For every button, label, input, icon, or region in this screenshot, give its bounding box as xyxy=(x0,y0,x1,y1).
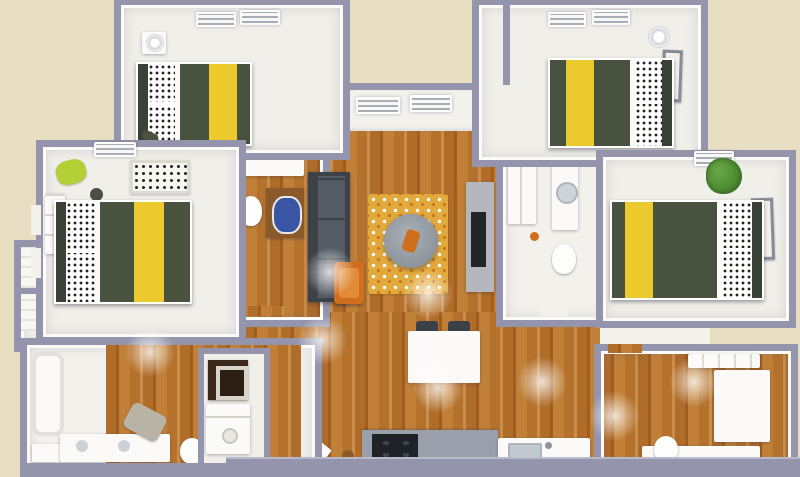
bed-comforter xyxy=(550,60,630,146)
door-opening xyxy=(248,306,284,316)
toilet xyxy=(552,244,576,274)
bed-pillows xyxy=(722,202,752,298)
bathtub xyxy=(32,352,64,436)
bed-headboard xyxy=(752,202,762,298)
tv-console xyxy=(466,182,494,292)
corner-counter xyxy=(714,370,770,442)
bed-comforter xyxy=(612,202,717,298)
shower xyxy=(32,444,60,462)
dryer-door xyxy=(216,366,248,400)
table-lamp xyxy=(146,34,164,52)
wood-vanity xyxy=(266,188,304,238)
bed-stripe xyxy=(625,202,653,298)
decor-orange xyxy=(530,232,539,241)
bed-comforter xyxy=(180,64,250,144)
sink-basin xyxy=(556,182,578,204)
bed-stripe xyxy=(209,64,237,144)
vent-icon xyxy=(94,142,136,157)
vent-icon xyxy=(410,95,452,112)
bed-headboard xyxy=(662,60,672,146)
bed xyxy=(54,200,192,304)
range xyxy=(372,434,418,458)
bed-pillows xyxy=(66,202,95,302)
chair-seat xyxy=(339,268,359,298)
vent-icon xyxy=(196,12,236,27)
exterior-wall-bottom-left xyxy=(20,463,240,477)
dryer-cabinet xyxy=(208,360,248,400)
washer-lid-line xyxy=(206,416,250,418)
table-lamp xyxy=(648,26,670,48)
floor-plan-canvas xyxy=(0,0,800,477)
door-opening xyxy=(540,306,568,316)
bed xyxy=(548,58,674,148)
blue-sink xyxy=(272,196,302,234)
bed-stripe xyxy=(134,202,164,302)
patterned-rug xyxy=(130,160,190,194)
potted-plant xyxy=(706,158,742,194)
vent-icon xyxy=(356,97,400,114)
tv xyxy=(471,212,486,267)
washer-dial xyxy=(222,428,238,444)
window xyxy=(31,205,41,235)
bed xyxy=(610,200,764,300)
bed-stripe xyxy=(566,60,594,146)
exterior-wall-bottom xyxy=(226,457,800,477)
washer xyxy=(206,404,250,454)
vent-icon xyxy=(240,10,280,25)
vent-icon xyxy=(548,12,586,27)
bed-pillows xyxy=(635,60,662,146)
sink-basin xyxy=(76,440,88,452)
door-opening xyxy=(608,344,642,353)
vent-icon xyxy=(592,10,630,25)
orange-accent-chair xyxy=(334,262,364,304)
island-table xyxy=(408,331,480,383)
bed-headboard xyxy=(56,202,66,302)
closet-wall xyxy=(503,5,510,85)
faucet xyxy=(545,442,552,449)
sink-basin xyxy=(118,440,130,452)
window xyxy=(31,248,41,278)
bed-comforter xyxy=(100,202,190,302)
bath-shelf xyxy=(688,354,760,368)
